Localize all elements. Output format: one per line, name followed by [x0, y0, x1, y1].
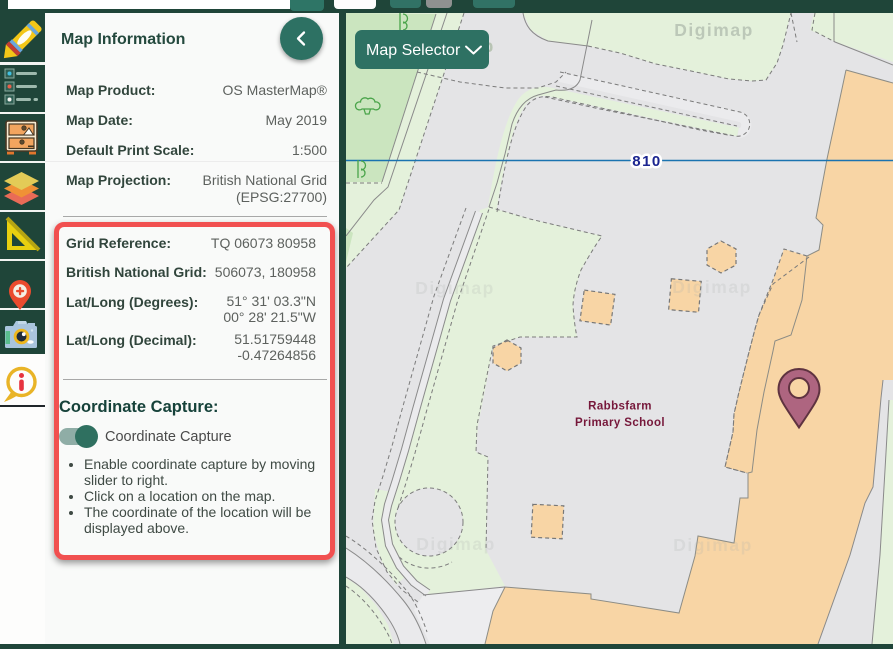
svg-text:810: 810	[632, 153, 662, 170]
svg-text:Digimap: Digimap	[672, 277, 752, 297]
svg-text:Digimap: Digimap	[416, 534, 496, 554]
svg-text:Primary School: Primary School	[575, 417, 665, 429]
svg-text:Rabbsfarm: Rabbsfarm	[588, 401, 652, 413]
svg-text:Digimap: Digimap	[674, 20, 754, 40]
svg-text:Digimap: Digimap	[415, 278, 495, 298]
svg-text:Digimap: Digimap	[673, 535, 753, 555]
svg-text:Map Selector: Map Selector	[366, 42, 461, 59]
